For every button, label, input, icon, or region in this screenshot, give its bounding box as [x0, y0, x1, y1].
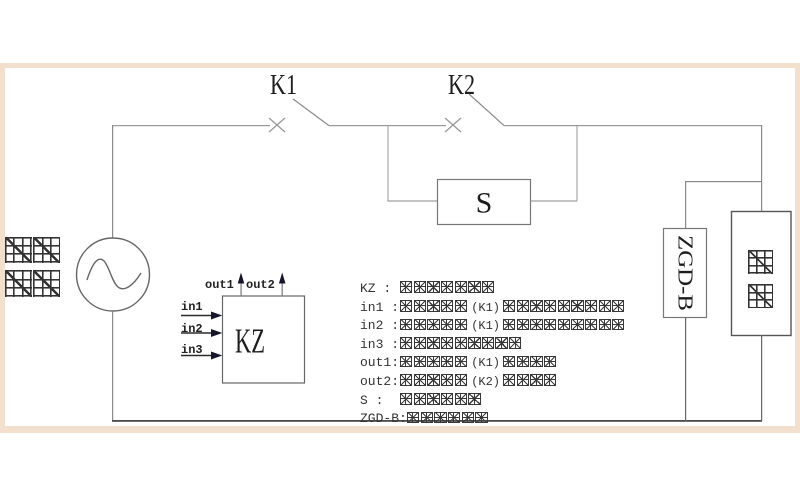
- svg-text:KZ: KZ: [235, 322, 265, 361]
- svg-text:K1: K1: [270, 70, 297, 101]
- svg-text:S: S: [476, 187, 493, 220]
- svg-text:K2: K2: [448, 70, 475, 101]
- svg-text:ZGD-B: ZGD-B: [674, 235, 698, 311]
